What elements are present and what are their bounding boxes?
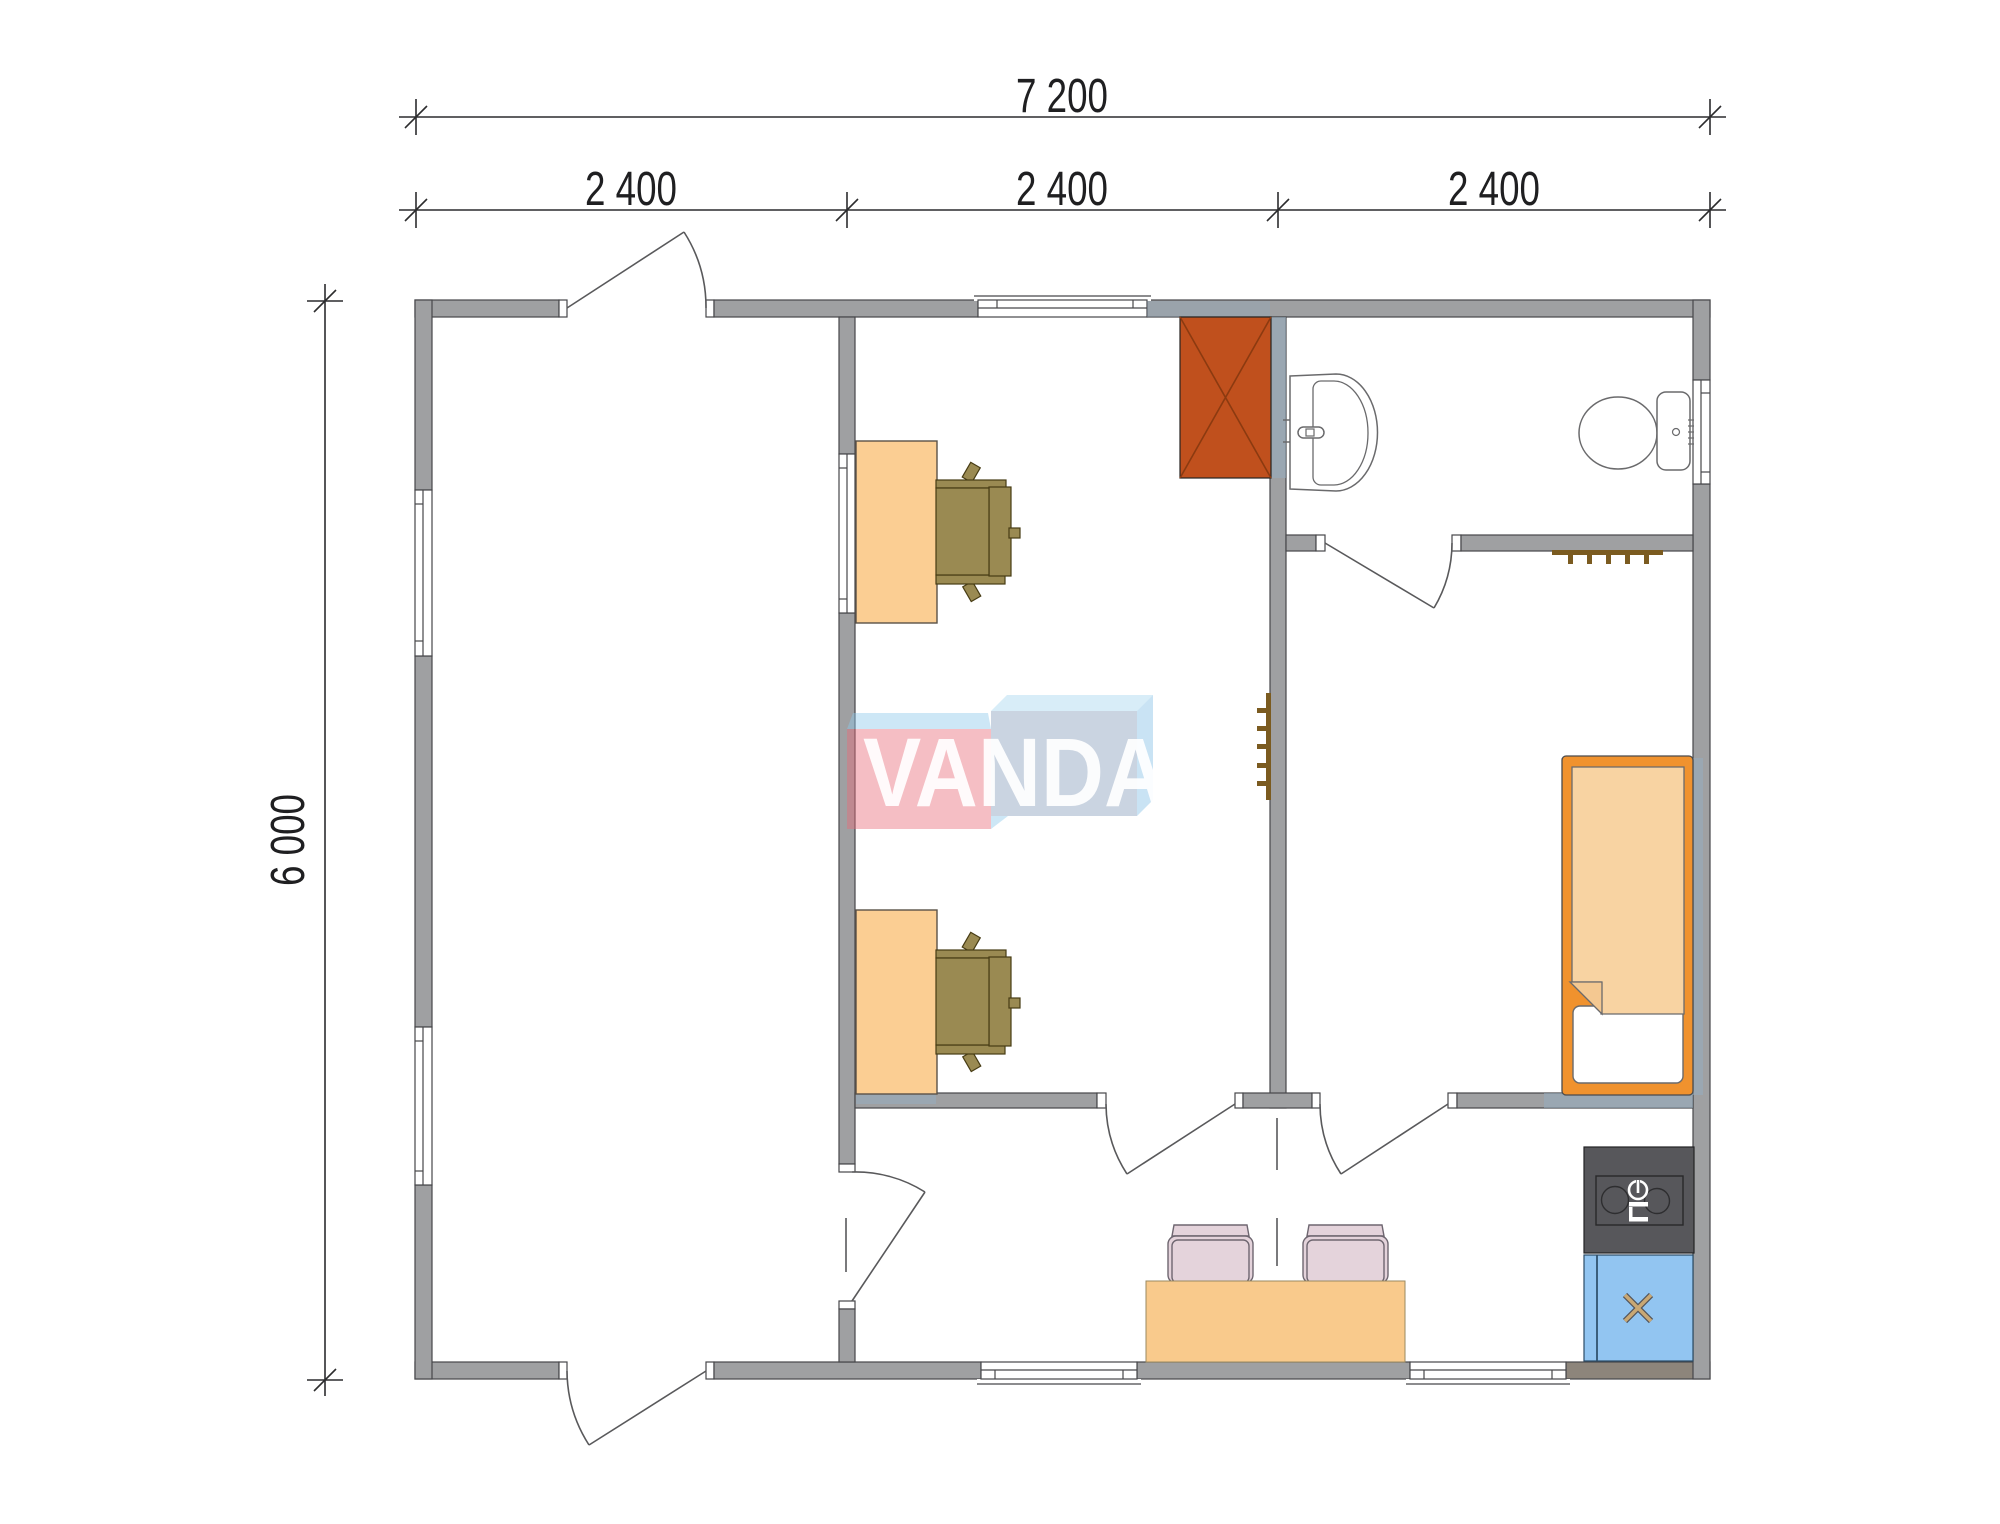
svg-text:6 000: 6 000 [262, 794, 315, 886]
svg-text:7 200: 7 200 [1016, 70, 1108, 123]
svg-text:2 400: 2 400 [1016, 163, 1108, 216]
svg-text:VANDA: VANDA [863, 718, 1167, 827]
svg-text:2 400: 2 400 [1448, 163, 1540, 216]
svg-text:2 400: 2 400 [585, 163, 677, 216]
